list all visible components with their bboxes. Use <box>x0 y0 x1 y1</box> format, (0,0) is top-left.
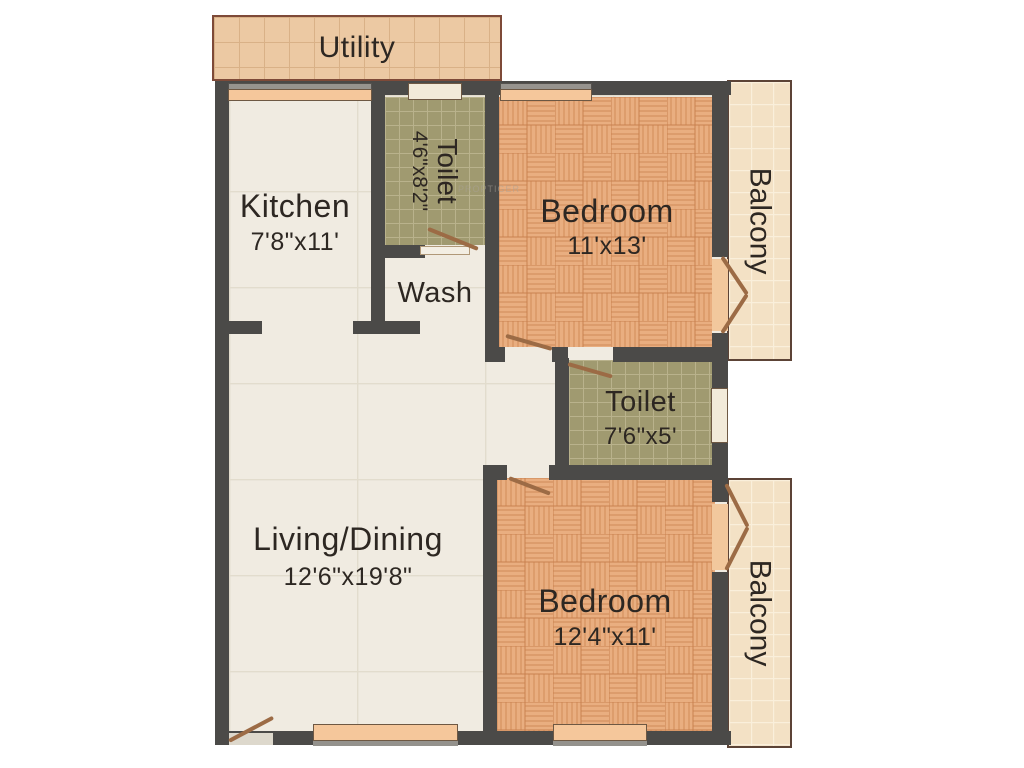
watermark-text: PROPTIGER <box>458 184 520 194</box>
toilet1-floor: Toilet 4'6"x8'2" <box>385 97 485 245</box>
living-dims: 12'6"x19'8" <box>218 563 478 592</box>
balcony1: Balcony <box>727 80 792 361</box>
utility-label: Utility <box>214 31 500 66</box>
balcony1-door-threshold <box>712 259 728 331</box>
utility-room: Utility <box>212 15 502 81</box>
floor-plan: Utility Toilet 4'6"x8'2" Balcony Balcony <box>0 0 1024 768</box>
bedroom2-dims: 12'4"x11' <box>505 623 705 652</box>
living-window-sill <box>313 741 458 746</box>
wall-wash-cap <box>353 321 420 334</box>
balcony2: Balcony <box>727 478 792 748</box>
kitchen-label: Kitchen <box>200 188 390 225</box>
wall-right-lower <box>712 572 728 745</box>
wall-bedroom1-left <box>485 95 499 361</box>
bedroom1-label: Bedroom <box>507 193 707 230</box>
bedroom2-window-sill <box>553 741 647 746</box>
wall-bedroom1-bottom-c <box>613 347 728 362</box>
wall-toilet1-bottom <box>385 245 425 258</box>
wall-left <box>215 81 229 745</box>
bedroom1-dims: 11'x13' <box>507 232 707 261</box>
wall-bedroom2-left <box>483 465 497 745</box>
balcony2-door-threshold <box>712 504 728 570</box>
toilet1-door-slab <box>420 246 470 255</box>
toilet2-window <box>711 388 728 443</box>
bedroom1-window <box>500 89 592 101</box>
wall-toilet2-left <box>555 358 569 474</box>
living-label: Living/Dining <box>218 521 478 558</box>
toilet1-window <box>408 83 462 100</box>
kitchen-window <box>228 89 372 101</box>
toilet2-dims: 7'6"x5' <box>569 423 712 451</box>
wall-bedroom1-bottom-a <box>485 347 505 362</box>
toilet1-dims: 4'6"x8'2" <box>407 131 431 211</box>
balcony2-label: Balcony <box>743 560 777 667</box>
living-window <box>313 724 458 741</box>
toilet1-label: Toilet <box>431 131 463 211</box>
bedroom2-label: Bedroom <box>505 583 705 620</box>
toilet2-label: Toilet <box>569 386 712 419</box>
wall-hall-bottom-b <box>549 465 728 480</box>
wall-right-upper <box>712 81 728 257</box>
wall-kitchen-stub <box>229 321 262 334</box>
balcony1-label: Balcony <box>743 167 777 274</box>
wall-bottom <box>215 731 731 745</box>
kitchen-dims: 7'8"x11' <box>200 228 390 257</box>
wash-label: Wash <box>380 277 490 310</box>
bedroom2-window <box>553 724 647 741</box>
